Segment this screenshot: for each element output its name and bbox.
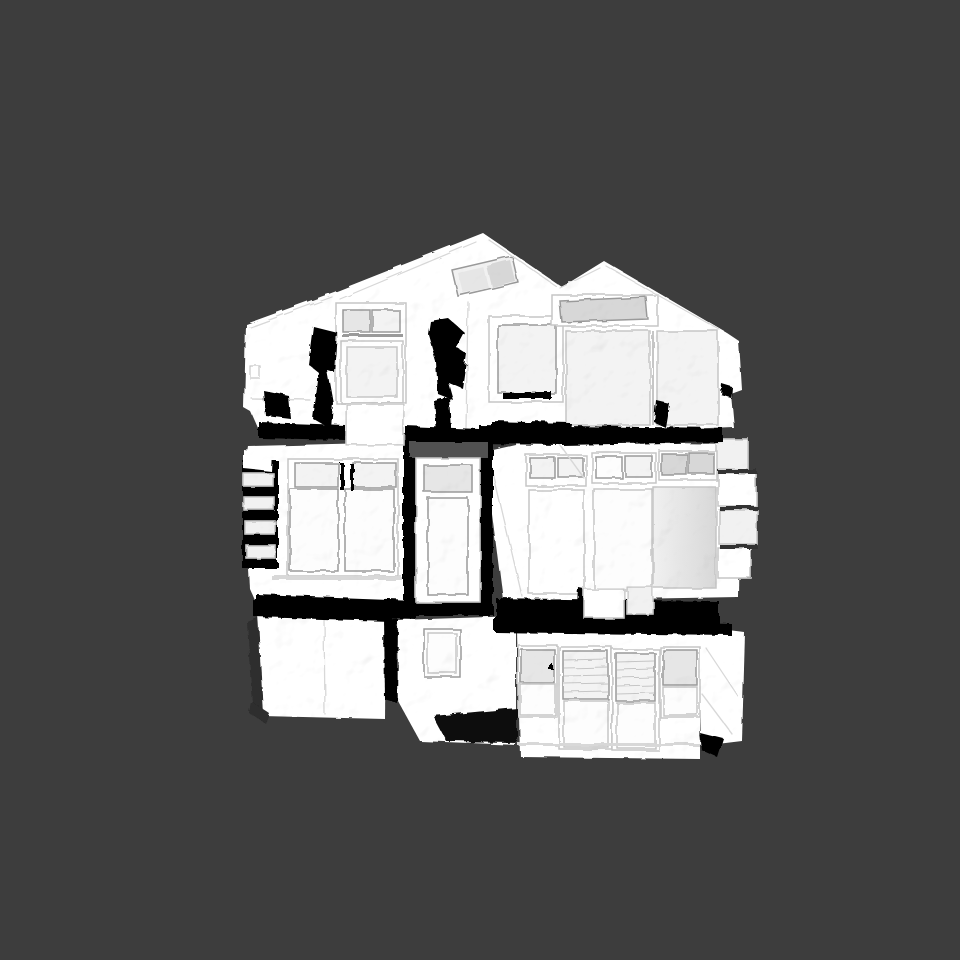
transom-pane xyxy=(689,453,714,474)
louver-top-wedge xyxy=(243,449,272,471)
protruding-block xyxy=(718,548,751,578)
block-gap xyxy=(718,543,756,547)
base-box xyxy=(627,587,653,614)
transom-pane xyxy=(530,458,555,478)
louver-slat xyxy=(245,521,275,534)
door-transom-pane xyxy=(424,465,472,492)
scan-hole xyxy=(547,663,552,668)
upper-right-gray-transom xyxy=(552,295,658,326)
storefront-gray-panel xyxy=(653,487,716,588)
storefront-pane xyxy=(594,489,652,590)
window-pane xyxy=(498,325,556,393)
block-gap xyxy=(718,505,758,509)
protruding-block xyxy=(716,439,748,469)
frame-shadow-mark xyxy=(339,462,343,489)
upper-right-framed-window xyxy=(489,316,563,402)
door-lower-panel xyxy=(617,703,655,748)
opening-pane xyxy=(663,650,697,685)
window-pane xyxy=(290,489,338,571)
transom-pane xyxy=(596,457,622,478)
glass-panel xyxy=(566,331,650,425)
mid-left-window-unit xyxy=(272,459,402,580)
protruding-block xyxy=(718,473,756,506)
shadow-gap xyxy=(382,616,397,702)
door-lower-panel xyxy=(564,701,608,747)
transom-pane xyxy=(353,463,396,487)
opening-lower-box xyxy=(663,687,697,715)
dormer-sill-line xyxy=(341,334,403,337)
lower-left-box xyxy=(257,612,386,719)
transom-pane xyxy=(295,463,338,487)
storefront-sill-line xyxy=(518,743,700,746)
block-gap xyxy=(716,468,756,472)
lower-right-crumpled-wall xyxy=(698,627,745,746)
dormer-pedestal xyxy=(346,404,404,445)
lower-mid-wall-window xyxy=(424,629,460,677)
louver-slat xyxy=(243,473,273,486)
opening-lower-box xyxy=(520,684,555,715)
window-pane xyxy=(345,489,394,571)
louver-slat xyxy=(244,497,274,510)
protruding-block xyxy=(719,510,757,544)
dormer-transom-pane xyxy=(343,310,370,332)
pane-shadow-line xyxy=(501,391,551,397)
small-window xyxy=(424,629,460,677)
house-scan-render xyxy=(0,0,960,960)
door-pane xyxy=(428,498,468,595)
upper-right-glass-panels xyxy=(566,331,718,425)
shadow-gap xyxy=(258,421,344,439)
transom-pane xyxy=(662,454,687,475)
sill-line xyxy=(272,576,402,580)
viewport-3d[interactable] xyxy=(0,0,960,960)
base-box xyxy=(584,589,624,618)
louver-slat xyxy=(246,545,275,558)
scan-hole xyxy=(433,396,450,431)
mid-center-door xyxy=(410,442,488,602)
dormer-window-pane xyxy=(347,347,397,397)
house-mesh xyxy=(244,233,757,759)
transom-pane xyxy=(558,458,583,477)
scan-hole xyxy=(455,352,463,379)
upper-dormer-window xyxy=(336,303,406,403)
transom-pane xyxy=(560,297,648,322)
frame-shadow-mark xyxy=(349,463,353,489)
door-header-shade xyxy=(410,442,488,458)
shadow-gap xyxy=(490,420,570,436)
dormer-transom-pane xyxy=(372,310,400,332)
storefront-pane xyxy=(529,490,584,594)
transom-pane xyxy=(625,456,652,477)
mid-right-storefront-band xyxy=(526,451,717,594)
